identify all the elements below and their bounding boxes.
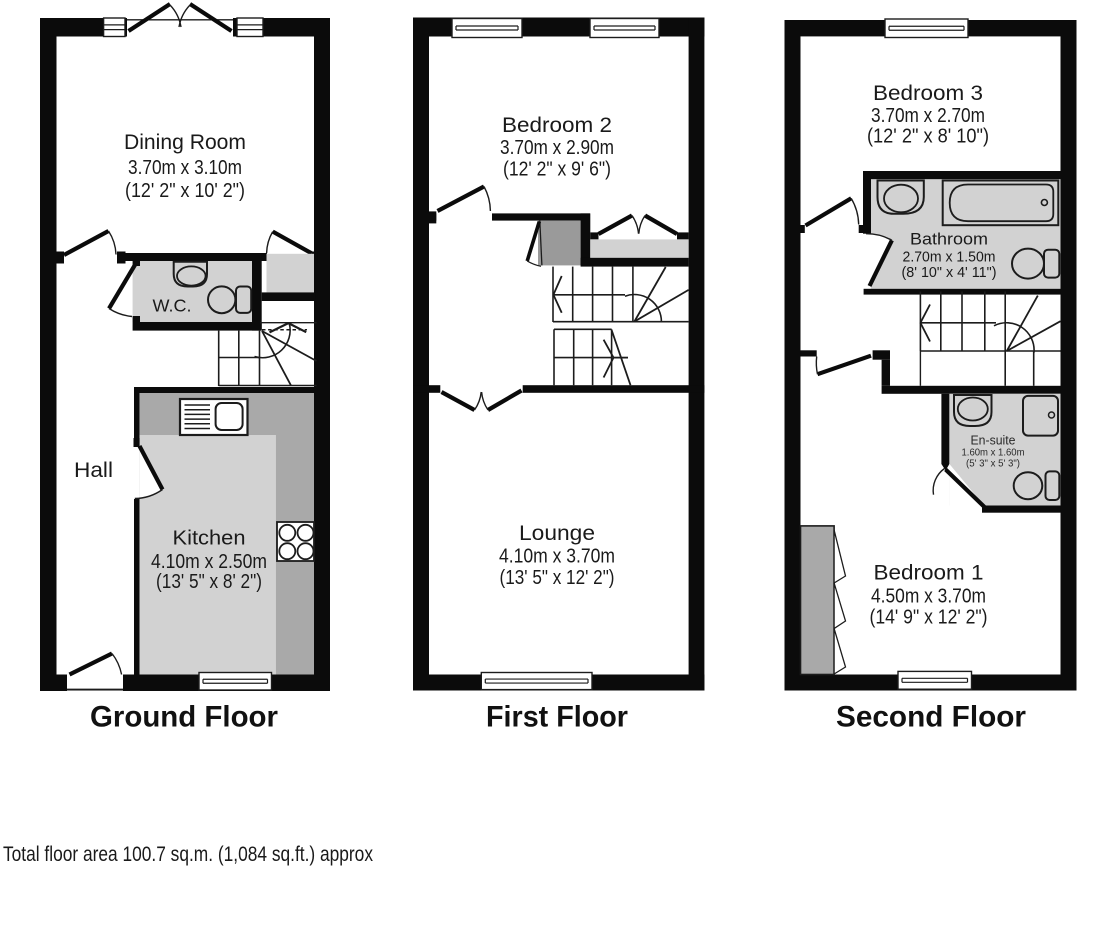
svg-text:Dining Room: Dining Room xyxy=(124,131,246,154)
svg-text:(8' 10" x 4' 11"): (8' 10" x 4' 11") xyxy=(902,265,997,281)
svg-text:(12' 2" x 10' 2"): (12' 2" x 10' 2") xyxy=(125,180,245,202)
svg-text:2.70m x 1.50m: 2.70m x 1.50m xyxy=(903,250,996,266)
svg-text:Bathroom: Bathroom xyxy=(910,231,988,249)
svg-text:4.10m x 2.50m: 4.10m x 2.50m xyxy=(151,551,267,573)
svg-text:Bedroom 3: Bedroom 3 xyxy=(873,81,983,105)
svg-text:Ground Floor: Ground Floor xyxy=(90,701,278,734)
svg-text:Second Floor: Second Floor xyxy=(836,701,1026,734)
svg-text:(5' 3" x 5' 3"): (5' 3" x 5' 3") xyxy=(966,458,1020,470)
svg-text:3.70m x 2.90m: 3.70m x 2.90m xyxy=(500,137,614,159)
svg-text:Total floor area 100.7 sq.m. (: Total floor area 100.7 sq.m. (1,084 sq.f… xyxy=(3,842,373,866)
svg-text:Hall: Hall xyxy=(74,459,113,482)
svg-text:3.70m x 2.70m: 3.70m x 2.70m xyxy=(871,105,985,127)
svg-text:3.70m x 3.10m: 3.70m x 3.10m xyxy=(128,157,242,179)
svg-text:(14' 9" x 12' 2"): (14' 9" x 12' 2") xyxy=(870,607,988,629)
svg-text:Lounge: Lounge xyxy=(519,521,595,545)
svg-text:(13' 5" x 8' 2"): (13' 5" x 8' 2") xyxy=(156,571,262,593)
svg-text:(13' 5" x 12' 2"): (13' 5" x 12' 2") xyxy=(500,567,615,589)
svg-text:En-suite: En-suite xyxy=(971,433,1016,447)
svg-text:4.10m x 3.70m: 4.10m x 3.70m xyxy=(499,546,615,568)
svg-text:Bedroom 2: Bedroom 2 xyxy=(502,113,612,137)
svg-text:W.C.: W.C. xyxy=(153,296,192,316)
svg-text:(12' 2" x 9' 6"): (12' 2" x 9' 6") xyxy=(503,159,611,181)
svg-text:(12' 2" x 8' 10"): (12' 2" x 8' 10") xyxy=(867,126,989,148)
svg-text:4.50m x 3.70m: 4.50m x 3.70m xyxy=(871,586,986,608)
svg-text:First Floor: First Floor xyxy=(486,701,628,734)
svg-text:Bedroom 1: Bedroom 1 xyxy=(874,561,984,585)
svg-text:Kitchen: Kitchen xyxy=(173,527,246,550)
